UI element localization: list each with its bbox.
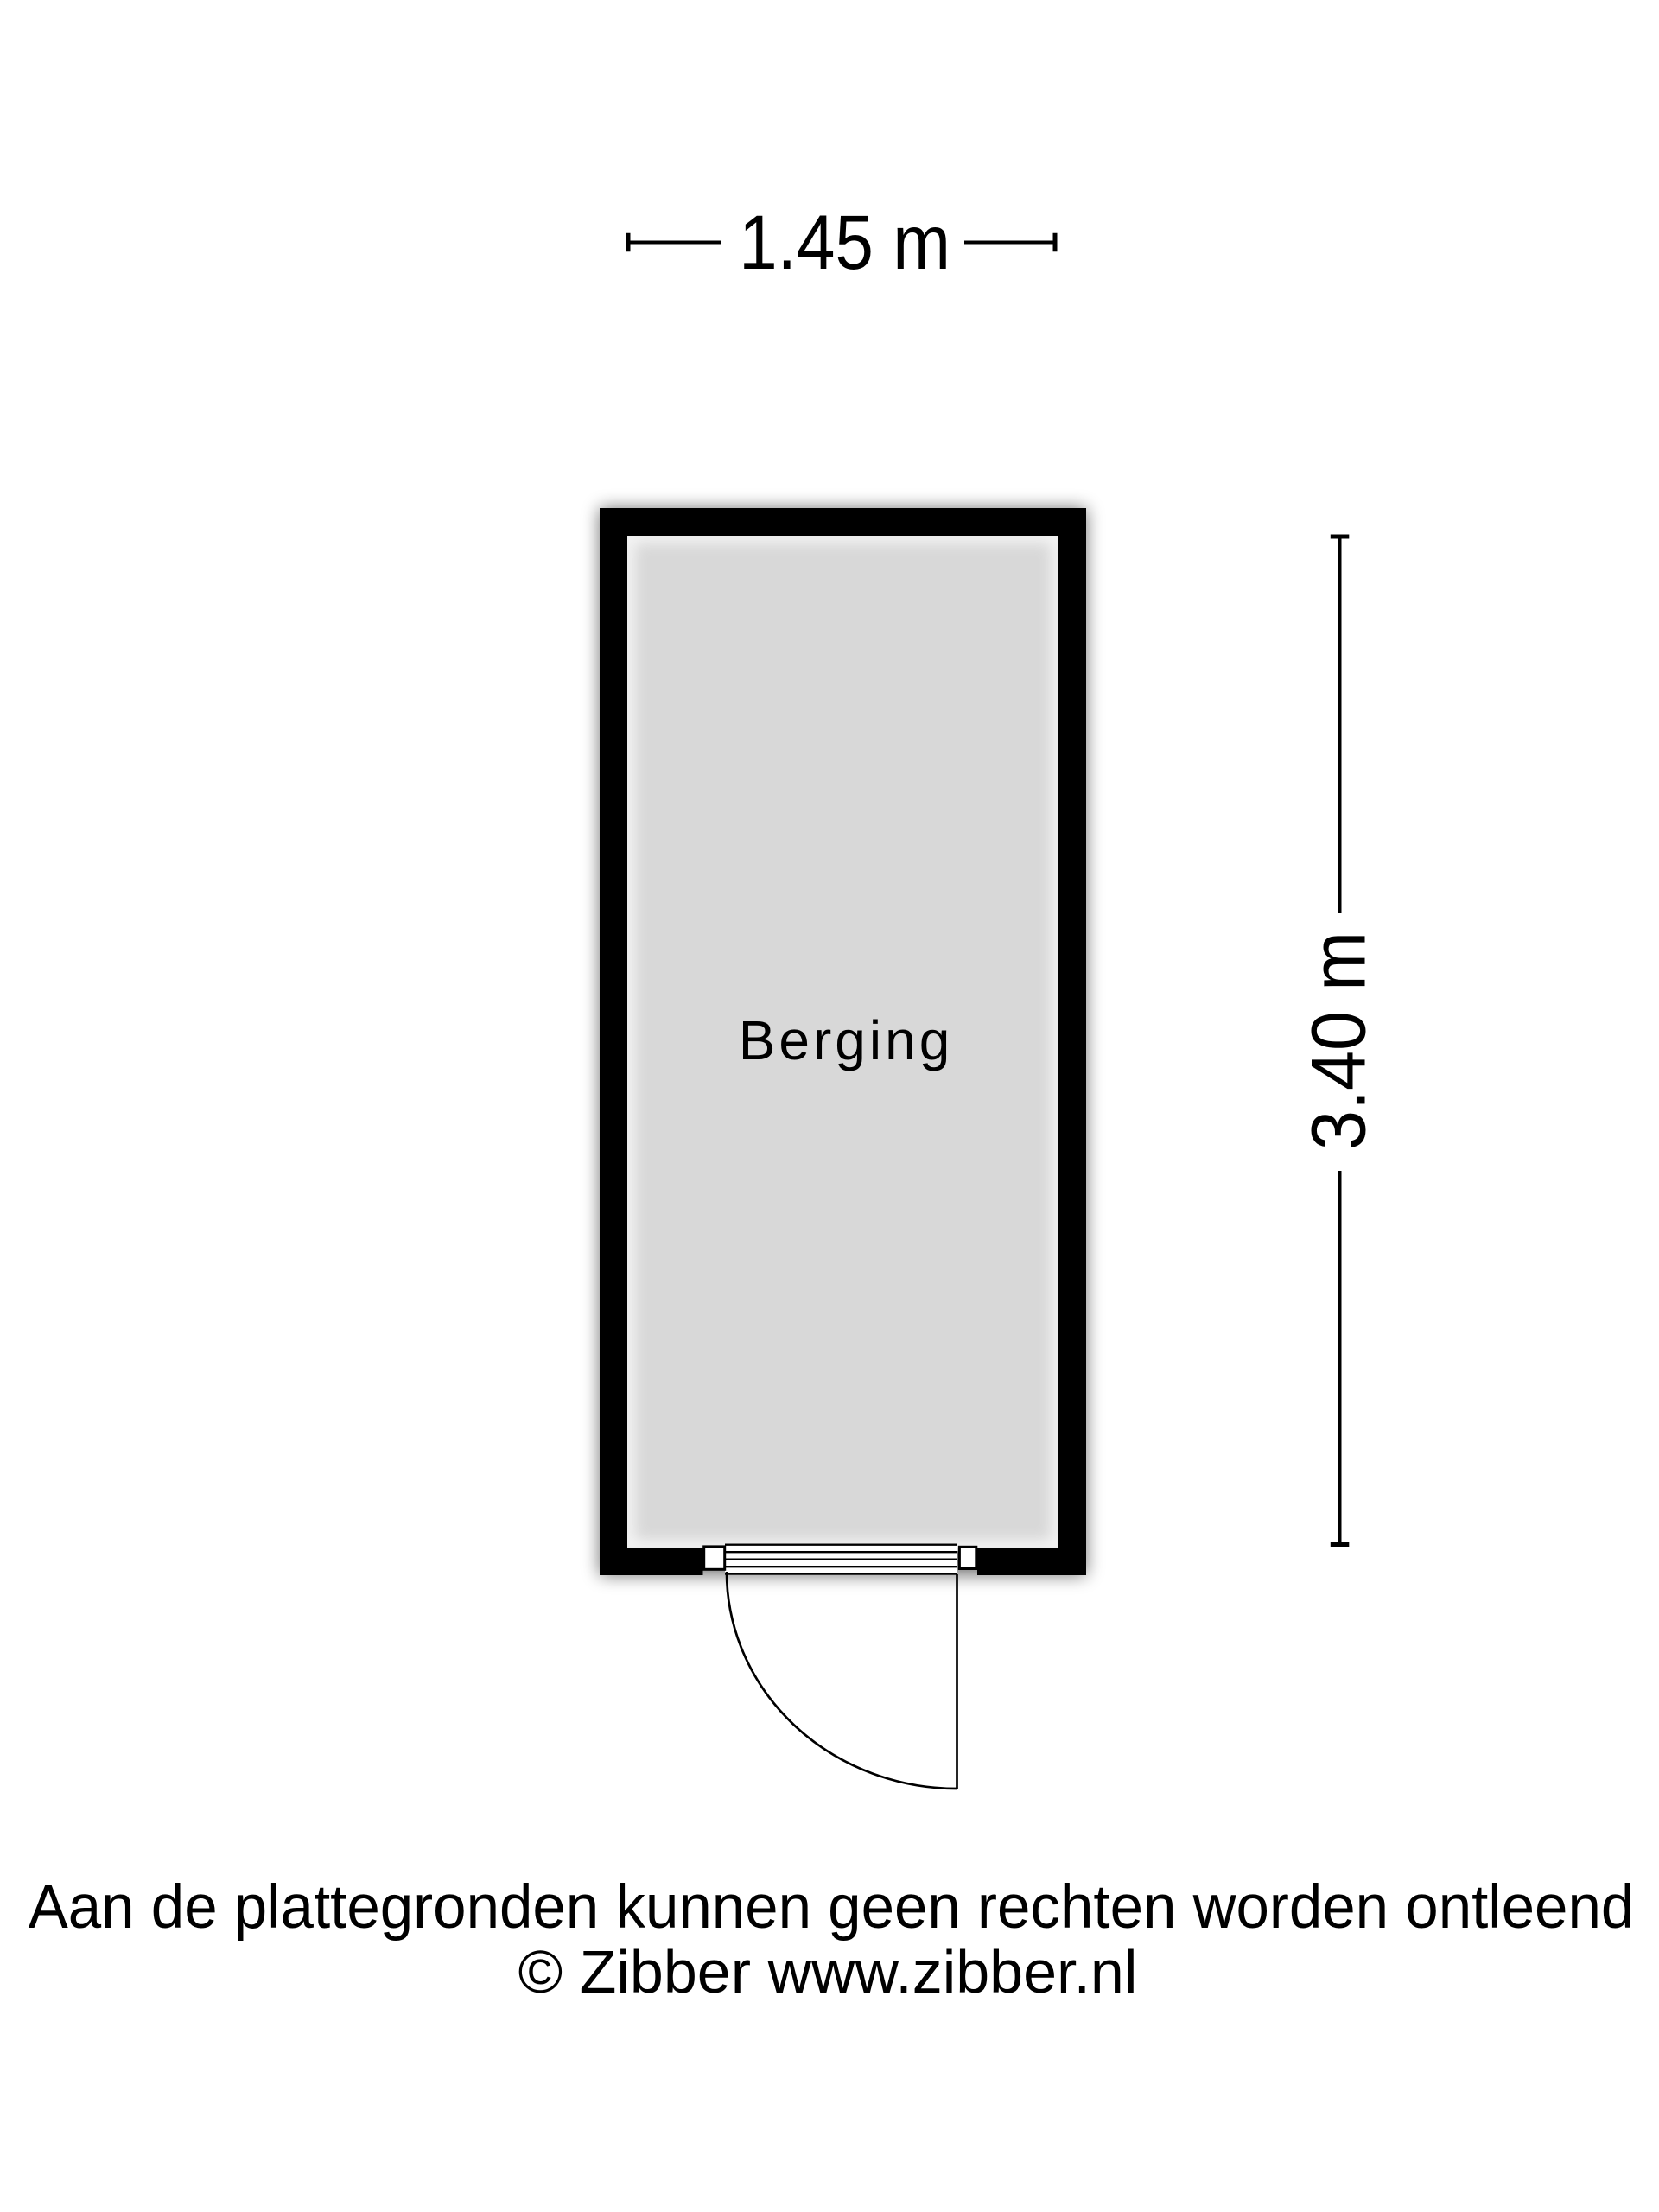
svg-text:Aan de plattegronden kunnen ge: Aan de plattegronden kunnen geen rechten… xyxy=(29,1872,1635,1941)
svg-text:© Zibber www.zibber.nl: © Zibber www.zibber.nl xyxy=(518,1938,1138,2005)
svg-text:3.40 m: 3.40 m xyxy=(1296,931,1382,1150)
svg-text:1.45 m: 1.45 m xyxy=(739,199,950,285)
svg-text:Berging: Berging xyxy=(739,1009,954,1071)
